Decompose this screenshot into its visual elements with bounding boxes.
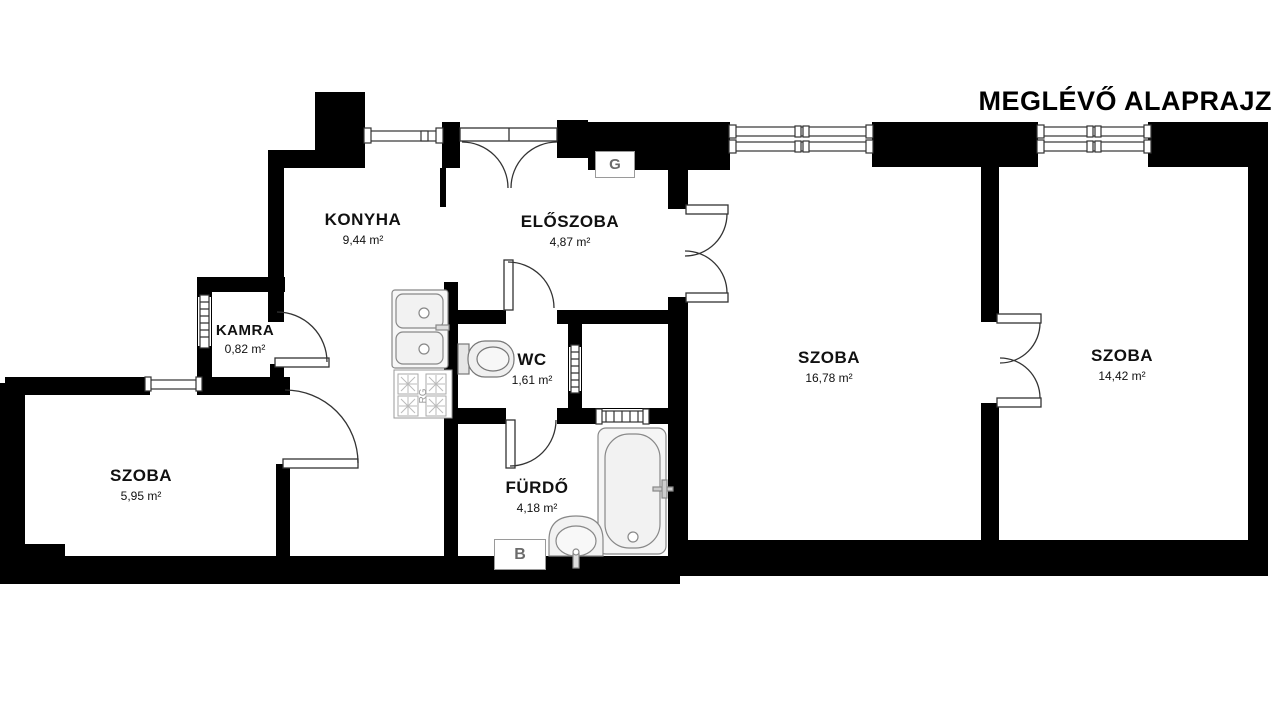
window-szoba-bal [145, 375, 202, 397]
room-name: SZOBA [1042, 346, 1202, 366]
room-area: 4,87 m² [480, 235, 660, 249]
door-eloszoba-szoba [685, 205, 728, 302]
boiler-marker: B [494, 539, 546, 570]
room-name: FÜRDŐ [457, 478, 617, 498]
wall-eloszoba-szoba-upper [668, 168, 688, 209]
room-name: SZOBA [749, 348, 909, 368]
wall-konyha-left [268, 150, 284, 322]
plan-title: MEGLÉVŐ ALAPRAJZ [978, 86, 1272, 117]
wall-right [1248, 160, 1268, 576]
room-label-wc: WC 1,61 m² [492, 350, 572, 387]
wall-entrance-right-jamb [557, 120, 588, 158]
room-label-kamra: KAMRA 0,82 m² [199, 322, 291, 356]
wall-bottom-right-band [668, 540, 1268, 576]
room-area: 16,78 m² [749, 371, 909, 385]
room-area: 9,44 m² [283, 233, 443, 247]
room-name: ELŐSZOBA [480, 212, 660, 232]
door-konyha-szoba [283, 390, 358, 468]
wall-top-pier [872, 122, 1038, 167]
door-szoba-szoba [997, 314, 1041, 407]
room-label-szoba-jobb: SZOBA 14,42 m² [1042, 346, 1202, 383]
door-entrance [460, 128, 557, 188]
wall-eloszoba-szoba-lower [668, 297, 688, 540]
wall-left [0, 383, 25, 568]
window-szoba-nagy [729, 122, 873, 167]
washbasin-tap [573, 554, 579, 568]
room-label-eloszoba: ELŐSZOBA 4,87 m² [480, 212, 660, 249]
wall-partition-lower [981, 403, 999, 540]
wall-leftroom-top-b [197, 377, 290, 395]
wall-kamra-top [197, 277, 285, 292]
wall-bottom-step [25, 544, 65, 558]
wall-stub-entrance [440, 167, 446, 207]
room-area: 5,95 m² [61, 489, 221, 503]
fixtures: RG [392, 290, 673, 568]
room-label-szoba-nagy: SZOBA 16,78 m² [749, 348, 909, 385]
room-area: 1,61 m² [492, 373, 572, 387]
room-area: 0,82 m² [199, 342, 291, 356]
room-area: 4,18 m² [457, 501, 617, 515]
door-wc [504, 260, 554, 310]
room-name: KAMRA [199, 322, 291, 339]
door-furdo [506, 420, 556, 468]
wall-leftroom-top-a [5, 377, 150, 395]
wall-entrance-left-jamb [442, 122, 460, 168]
room-label-konyha: KONYHA 9,44 m² [283, 210, 443, 247]
room-name: WC [492, 350, 572, 370]
room-label-furdo: FÜRDŐ 4,18 m² [457, 478, 617, 515]
window-konyha [364, 122, 443, 168]
wall-partition-upper [981, 167, 999, 322]
gas-stove: RG [394, 370, 452, 418]
room-name: KONYHA [283, 210, 443, 230]
gas-meter-marker: G [595, 151, 635, 178]
room-label-szoba-bal: SZOBA 5,95 m² [61, 466, 221, 503]
stove-label: RG [418, 388, 429, 403]
floorplan-page: RG MEGLÉ [0, 0, 1280, 709]
kitchen-sink [392, 290, 449, 368]
room-name: SZOBA [61, 466, 221, 486]
room-area: 14,42 m² [1042, 369, 1202, 383]
wall-leftroom-right [276, 464, 290, 564]
window-shaft [596, 409, 649, 425]
window-szoba-jobb [1037, 122, 1151, 167]
